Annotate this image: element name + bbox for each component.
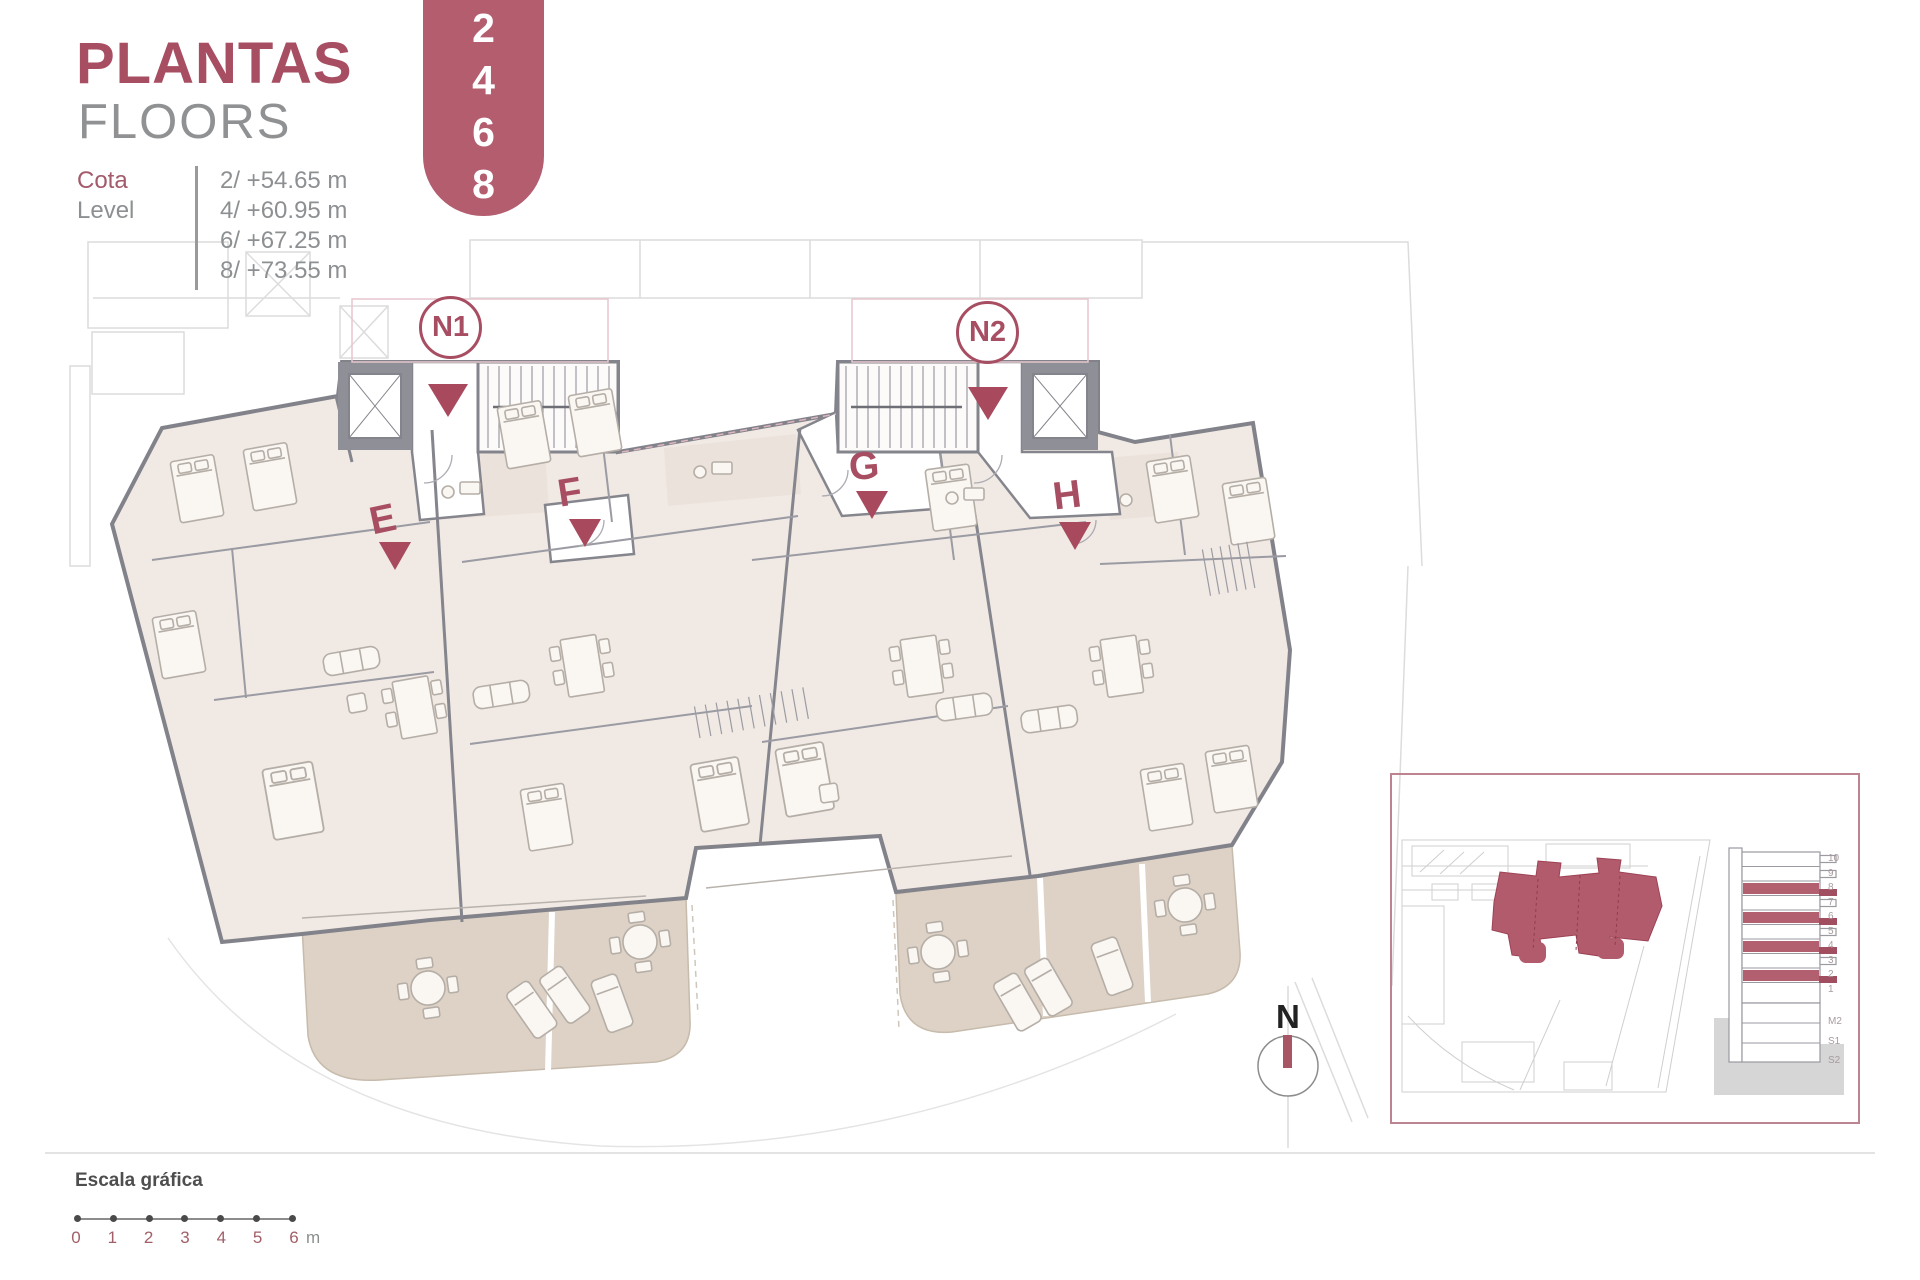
section-floor-label: S1: [1828, 1032, 1842, 1052]
floor-badge-number: 6: [472, 106, 495, 158]
scale-dot: [253, 1215, 260, 1222]
floor-plan-sheet: { "accent_color": "#ab4e62", "header": {…: [0, 0, 1920, 1280]
scale-tick-numbers: 0123456: [68, 1228, 302, 1248]
scale-tick: 0: [68, 1228, 84, 1248]
levels-label-es: Cota: [77, 166, 195, 196]
footer-divider: [45, 1152, 1875, 1154]
scale-tick: 1: [104, 1228, 120, 1248]
scale-dot: [146, 1215, 153, 1222]
scale-tick: 3: [177, 1228, 193, 1248]
section-floor-label: 2: [1828, 968, 1839, 983]
levels-block: Cota Level 2/ +54.65 m4/ +60.95 m6/ +67.…: [77, 166, 347, 290]
scale-unit: m: [306, 1228, 320, 1248]
section-floor-labels-lower: M2S1S2: [1828, 1012, 1842, 1071]
scale-tick: 6: [286, 1228, 302, 1248]
entrance-arrow-f: [569, 519, 601, 547]
entrance-arrow-h: [1059, 522, 1091, 550]
entrance-arrow-g: [856, 491, 888, 519]
level-value: 4/ +60.95 m: [220, 196, 347, 226]
scale-label: Escala gráfica: [75, 1170, 203, 1192]
scale-tick: 5: [250, 1228, 266, 1248]
level-value: 8/ +73.55 m: [220, 256, 347, 286]
section-floor-label: 5: [1828, 925, 1839, 940]
page-title: PLANTAS: [76, 30, 353, 97]
floor-badge-number: 4: [472, 54, 495, 106]
core-label-n2: N2: [956, 301, 1019, 364]
unit-label-h: H: [1050, 472, 1083, 519]
scale-dot: [217, 1215, 224, 1222]
section-floor-label: 9: [1828, 867, 1839, 882]
section-floor-label: 4: [1828, 939, 1839, 954]
level-value: 6/ +67.25 m: [220, 226, 347, 256]
section-floor-label: 1: [1828, 983, 1839, 998]
floor-badge-number: 2: [472, 2, 495, 54]
level-value: 2/ +54.65 m: [220, 166, 347, 196]
section-floor-labels-upper: 10987654321: [1828, 852, 1839, 997]
north-compass: [1258, 1035, 1318, 1096]
levels-label-en: Level: [77, 196, 195, 226]
section-floor-label: M2: [1828, 1012, 1842, 1032]
floor-badge-number: 8: [472, 158, 495, 210]
location-inset-frame: [1390, 773, 1860, 1124]
north-label: N: [1276, 998, 1300, 1036]
entrance-arrow-n2: [968, 387, 1008, 420]
section-floor-label: S2: [1828, 1051, 1842, 1071]
section-floor-label: 6: [1828, 910, 1839, 925]
scale-dot: [74, 1215, 81, 1222]
section-floor-label: 8: [1828, 881, 1839, 896]
scale-dot: [181, 1215, 188, 1222]
entrance-arrow-n1: [428, 384, 468, 417]
scale-dot: [289, 1215, 296, 1222]
core-label-n1: N1: [419, 296, 482, 359]
scale-tick: 2: [141, 1228, 157, 1248]
scale-tick: 4: [213, 1228, 229, 1248]
scale-dot: [110, 1215, 117, 1222]
entrance-arrow-e: [379, 542, 411, 570]
scale-bar-dots: [74, 1215, 296, 1222]
section-floor-label: 10: [1828, 852, 1839, 867]
floor-badge: 2468: [423, 0, 544, 216]
unit-label-g: G: [848, 444, 881, 490]
north-needle: [1283, 1035, 1292, 1068]
section-floor-label: 7: [1828, 896, 1839, 911]
page-subtitle: FLOORS: [78, 94, 291, 150]
levels-values: 2/ +54.65 m4/ +60.95 m6/ +67.25 m8/ +73.…: [198, 166, 347, 290]
section-floor-label: 3: [1828, 954, 1839, 969]
